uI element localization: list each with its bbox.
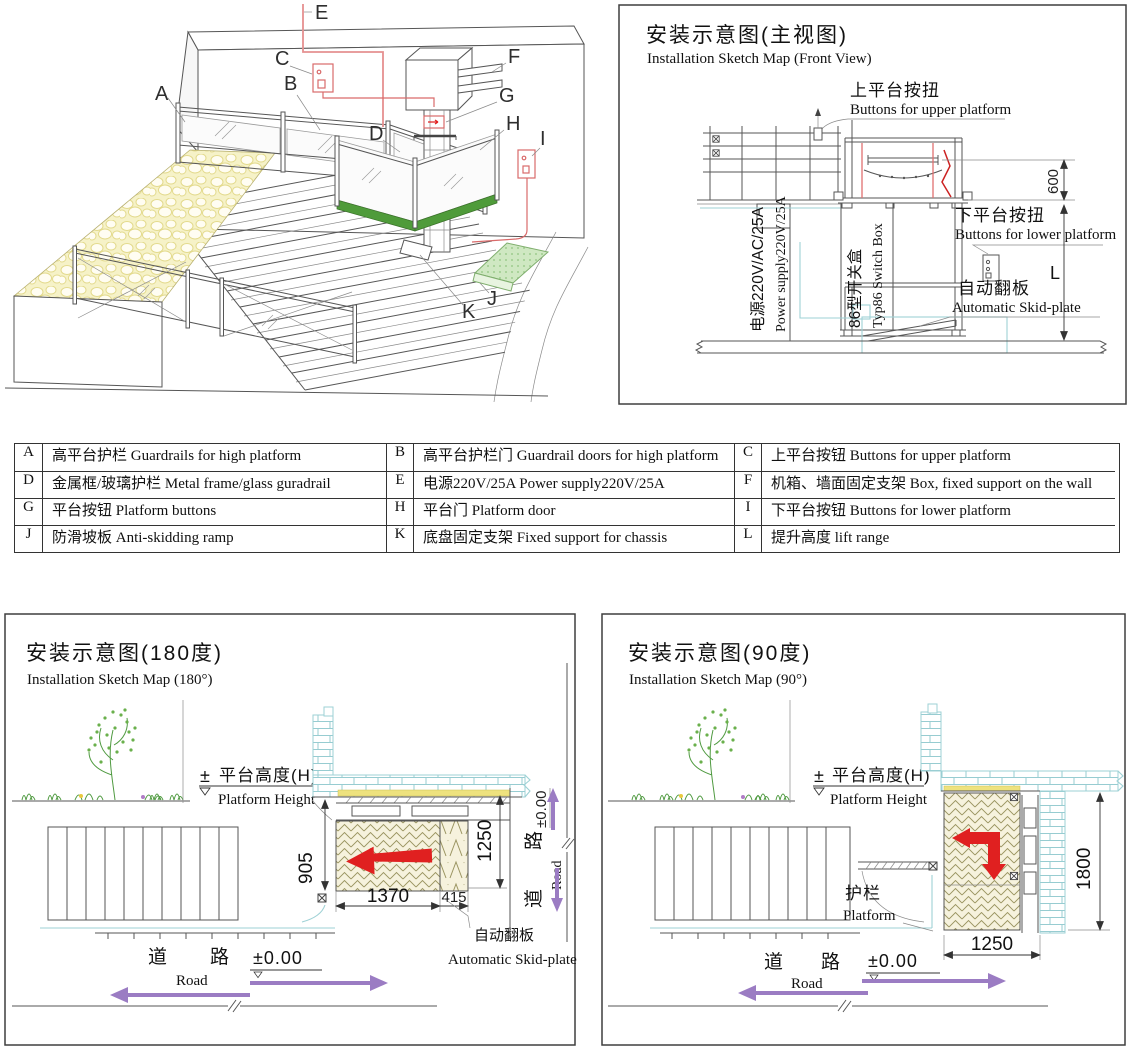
side-arrow-up-shaft — [551, 800, 555, 830]
label-i: I — [540, 128, 546, 150]
road-arrow-right-head — [370, 975, 388, 991]
legend-desc: 高平台护栏门 Guardrail doors for high platform — [413, 444, 734, 471]
plus-minus-90: ± — [814, 766, 825, 786]
power-label-cn: 电源220V/AC/25A — [749, 206, 767, 332]
isometric-view: A B C D E F G H I J K — [0, 0, 620, 415]
legend-key: D — [15, 471, 42, 498]
road-arrow-right-shaft-90 — [862, 979, 988, 983]
small-platform-90: 护栏 Platform — [843, 862, 937, 931]
height-cn: 平台高度(H) — [219, 766, 318, 785]
label-k: K — [462, 301, 476, 323]
label-d: D — [369, 123, 383, 145]
road-cn2: 路 — [210, 946, 229, 968]
height-cn-90: 平台高度(H) — [832, 766, 931, 785]
fence — [40, 827, 335, 939]
plants — [12, 700, 190, 803]
lift-cab — [834, 120, 972, 208]
skid-cn-180: 自动翻板 — [474, 926, 534, 944]
legend-desc: 平台门 Platform door — [413, 498, 734, 525]
legend-desc: 提升高度 lift range — [761, 525, 1115, 552]
dim-1800-text: 1800 — [1074, 848, 1095, 890]
map180-panel: 安装示意图(180度) Installation Sketch Map (180… — [3, 612, 578, 1048]
plus-minus: ± — [200, 766, 211, 786]
legend-desc: 金属框/玻璃护栏 Metal frame/glass guradrail — [42, 471, 386, 498]
dim-1250-text: 1250 — [475, 820, 496, 862]
road-side-180: 道 路 ±0.00 Road — [510, 663, 574, 942]
upper-landing-slab — [697, 200, 845, 341]
legend-key: B — [386, 444, 413, 471]
legend-desc: 电源220V/25A Power supply220V/25A — [413, 471, 734, 498]
upper-buttons-en: Buttons for upper platform — [850, 102, 1012, 118]
dim-1250: 1250 — [468, 796, 507, 888]
installation-drawing-page: A B C D E F G H I J K 安装示意图(主视图) Install… — [0, 0, 1131, 1051]
skid-plate-en: Automatic Skid-plate — [952, 300, 1081, 316]
legend-desc: 底盘固定支架 Fixed support for chassis — [413, 525, 734, 552]
plants-90 — [608, 700, 795, 803]
road-cn1-90: 道 — [764, 951, 783, 973]
side-road-cn2: 路 — [523, 831, 545, 850]
skid-plate-cn: 自动翻板 — [958, 279, 1030, 298]
switch-box-label-cn: 86型开关盒 — [846, 248, 864, 328]
cab-cables — [862, 143, 951, 198]
side-arrow-down-shaft — [555, 868, 559, 900]
dim-600: 600 — [1045, 169, 1062, 194]
legend-desc: 上平台按钮 Buttons for upper platform — [761, 444, 1115, 471]
lower-buttons-cn: 下平台按扭 — [955, 206, 1045, 225]
label-j: J — [487, 288, 497, 310]
rail-cn-90: 护栏 — [845, 884, 881, 903]
front-view-title-cn: 安装示意图(主视图) — [646, 24, 848, 47]
legend-key: J — [15, 525, 42, 552]
skid-en-180: Automatic Skid-plate — [448, 952, 577, 968]
cobblestone-ramp — [14, 150, 275, 387]
label-a: A — [155, 83, 169, 105]
platform-height-label: ± 平台高度(H) Platform Height — [199, 766, 332, 820]
skid-plate-callout: 自动翻板 Automatic Skid-plate — [920, 279, 1100, 326]
road-level: ±0.00 — [253, 948, 303, 968]
dim-1800: 1800 — [1068, 793, 1110, 930]
dim-905-text: 905 — [296, 852, 317, 884]
lower-buttons-en: Buttons for lower platform — [955, 227, 1117, 243]
road-cn2-90: 路 — [821, 951, 840, 973]
dim-415-text: 415 — [441, 889, 466, 906]
upper-buttons-cn: 上平台按扭 — [850, 81, 940, 100]
legend-desc: 高平台护栏 Guardrails for high platform — [42, 444, 386, 471]
road-arrow-left-shaft — [128, 993, 250, 997]
road-arrow-left-shaft-90 — [756, 991, 868, 995]
road-en: Road — [176, 973, 208, 989]
legend-key: L — [734, 525, 761, 552]
height-en-90: Platform Height — [830, 792, 928, 808]
front-view-title-en: Installation Sketch Map (Front View) — [647, 51, 872, 67]
legend-desc: 下平台按钮 Buttons for lower platform — [761, 498, 1115, 525]
platform-mechanism — [313, 790, 522, 820]
label-f: F — [508, 46, 520, 68]
legend-table: A 高平台护栏 Guardrails for high platform B 高… — [14, 443, 1120, 553]
switch-box-label-en: Typ86 Switch Box — [871, 223, 886, 328]
dim-l: L — [1050, 263, 1061, 283]
pit-section — [336, 821, 468, 891]
side-road-level: ±0.00 — [533, 791, 550, 828]
road-bottom-180: 道 路 Road ±0.00 — [12, 946, 437, 1012]
road-arrow-left-head — [110, 987, 128, 1003]
road-en-90: Road — [791, 976, 823, 992]
legend-key: G — [15, 498, 42, 525]
legend-key: F — [734, 471, 761, 498]
map90-title-en: Installation Sketch Map (90°) — [629, 672, 807, 688]
map90-title-cn: 安装示意图(90度) — [628, 642, 811, 665]
dim-1370-text: 1370 — [367, 886, 409, 907]
height-en: Platform Height — [218, 792, 316, 808]
legend-key: H — [386, 498, 413, 525]
lower-buttons-callout: 下平台按扭 Buttons for lower platform — [955, 206, 1117, 281]
map90-panel: 安装示意图(90度) Installation Sketch Map (90°)… — [600, 612, 1128, 1048]
road-bottom-90: 道 路 Road ±0.00 — [608, 951, 1048, 1012]
label-e: E — [315, 2, 328, 24]
legend-key: K — [386, 525, 413, 552]
platform-height-label-90: ± 平台高度(H) Platform Height — [813, 766, 931, 808]
legend-desc: 机箱、墙面固定支架 Box, fixed support on the wall — [761, 471, 1115, 498]
road-arrow-left-head-90 — [738, 985, 756, 1001]
brick-wall — [313, 707, 530, 797]
ground — [696, 341, 1106, 353]
side-arrow-down-head — [551, 898, 563, 912]
rail-en-90: Platform — [843, 908, 896, 924]
map180-title-en: Installation Sketch Map (180°) — [27, 672, 213, 688]
road-arrow-right-shaft — [250, 981, 370, 985]
label-g: G — [499, 85, 515, 107]
dim-1250-90-text: 1250 — [971, 934, 1013, 955]
legend-desc: 防滑坡板 Anti-skidding ramp — [42, 525, 386, 552]
label-b: B — [284, 73, 297, 95]
label-h: H — [506, 113, 520, 135]
legend-key: E — [386, 471, 413, 498]
legend-desc: 平台按钮 Platform buttons — [42, 498, 386, 525]
dim-1250-90: 1250 — [944, 934, 1040, 960]
road-level-90: ±0.00 — [868, 951, 918, 971]
label-c: C — [275, 48, 289, 70]
road-cn1: 道 — [148, 946, 167, 968]
front-view-panel: 安装示意图(主视图) Installation Sketch Map (Fron… — [617, 3, 1129, 406]
legend-key: A — [15, 444, 42, 471]
map180-title-cn: 安装示意图(180度) — [26, 642, 223, 665]
dim-905: 905 — [296, 800, 326, 922]
legend-key: I — [734, 498, 761, 525]
road-arrow-right-head-90 — [988, 973, 1006, 989]
upper-buttons-callout: 上平台按扭 Buttons for upper platform — [814, 81, 1012, 140]
power-label-en: Power supply220V/25A — [774, 195, 789, 332]
side-road-cn1: 道 — [523, 889, 545, 908]
legend-key: C — [734, 444, 761, 471]
